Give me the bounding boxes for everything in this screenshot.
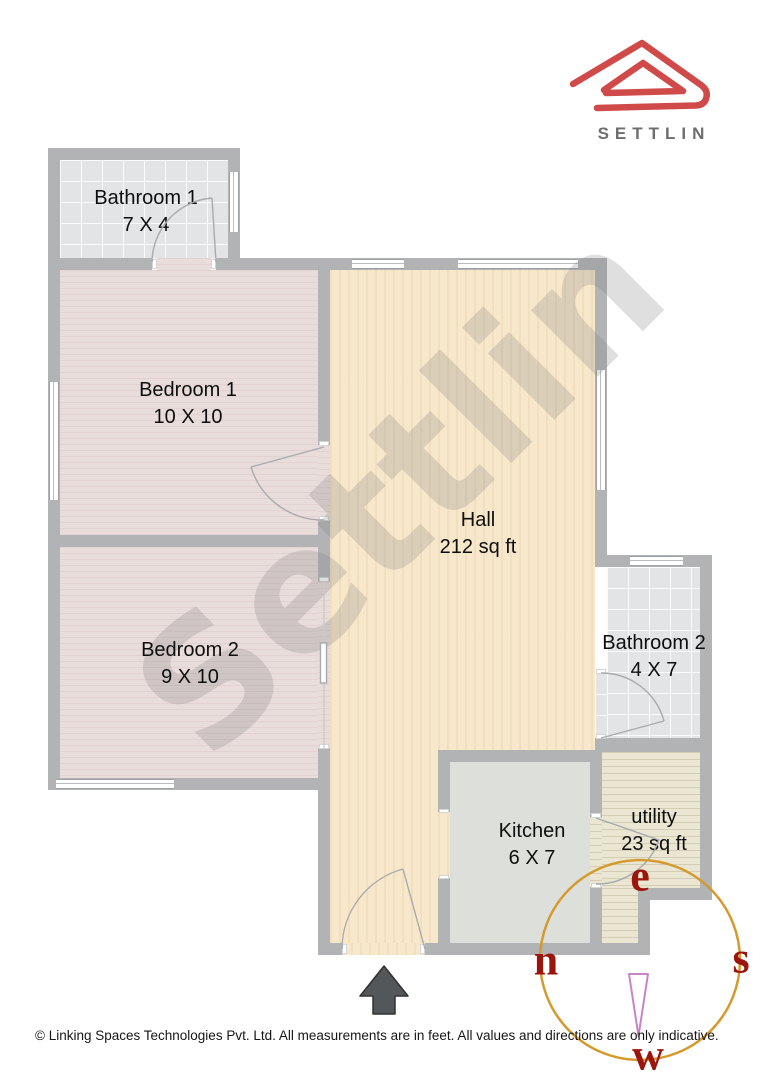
wall-bedrooms-hall-a <box>318 270 330 445</box>
bedroom1-door-threshold <box>318 445 330 520</box>
jamb <box>591 813 601 818</box>
room-name: Bathroom 1 <box>94 185 197 212</box>
utility-door-threshold <box>590 817 602 887</box>
jamb <box>342 944 347 954</box>
wall-bathroom1-bottom-b <box>216 258 330 270</box>
wall-bathroom1-bottom-a <box>48 258 152 270</box>
disclaimer-text: © Linking Spaces Technologies Pvt. Ltd. … <box>35 1028 719 1043</box>
wall-kitchen-top <box>438 750 602 762</box>
jamb <box>591 883 601 888</box>
floor-plan-page: { "logo": { "brand": "SETTLIN" }, "water… <box>0 0 763 1080</box>
wall-bottom-a <box>318 943 342 955</box>
room-name: Hall <box>440 507 517 534</box>
bedroom2-label: Bedroom 2 9 X 10 <box>141 637 239 691</box>
window-hall-right <box>596 370 606 490</box>
bathroom1-label: Bathroom 1 7 X 4 <box>94 185 197 239</box>
entrance-door-threshold <box>342 943 425 955</box>
hall-label: Hall 212 sq ft <box>440 507 517 561</box>
room-name: Bedroom 1 <box>139 377 237 404</box>
window-bathroom1 <box>229 172 239 232</box>
window-hall-top-2 <box>458 259 578 269</box>
jamb <box>319 577 329 582</box>
kitchen-opening-threshold <box>438 812 450 878</box>
wall-bedroom-divider <box>48 535 330 547</box>
floor-plan <box>0 0 763 1080</box>
jamb <box>319 744 329 749</box>
room-dims: 9 X 10 <box>141 664 239 691</box>
window-bedroom2 <box>56 779 174 789</box>
wall-bathroom1-top <box>48 148 240 160</box>
jamb <box>319 441 329 446</box>
bathroom1-door-threshold <box>157 258 211 270</box>
window-hall-top-1 <box>352 259 404 269</box>
compass-east: e <box>630 851 650 902</box>
jamb <box>152 259 157 269</box>
jamb <box>211 259 216 269</box>
room-name: Bedroom 2 <box>141 637 239 664</box>
kitchen-label: Kitchen 6 X 7 <box>499 818 566 872</box>
bedroom1-label: Bedroom 1 10 X 10 <box>139 377 237 431</box>
compass-south: s <box>732 933 749 984</box>
wall-bedrooms-hall-b <box>318 520 330 582</box>
room-name: Kitchen <box>499 818 566 845</box>
wall-bathroom2-bottom <box>595 738 712 752</box>
room-dims: 212 sq ft <box>440 534 517 561</box>
jamb <box>439 875 449 879</box>
jamb <box>596 734 606 739</box>
room-dims: 7 X 4 <box>94 212 197 239</box>
room-name: utility <box>621 804 687 831</box>
room-dims: 10 X 10 <box>139 404 237 431</box>
window-bedroom1 <box>49 382 59 500</box>
jamb <box>319 516 329 521</box>
jamb <box>420 944 425 954</box>
room-name: Bathroom 2 <box>602 630 705 657</box>
wall-right <box>700 555 712 900</box>
room-dims: 4 X 7 <box>602 657 705 684</box>
room-dims: 6 X 7 <box>499 845 566 872</box>
bathroom2-label: Bathroom 2 4 X 7 <box>602 630 705 684</box>
wall-kitchen-utility-a <box>590 750 602 817</box>
wall-kitchen-left-a <box>438 750 450 812</box>
compass-north: n <box>534 935 558 986</box>
jamb <box>439 809 449 813</box>
window-bathroom2 <box>630 556 683 566</box>
bedroom2-door-threshold <box>318 582 330 748</box>
